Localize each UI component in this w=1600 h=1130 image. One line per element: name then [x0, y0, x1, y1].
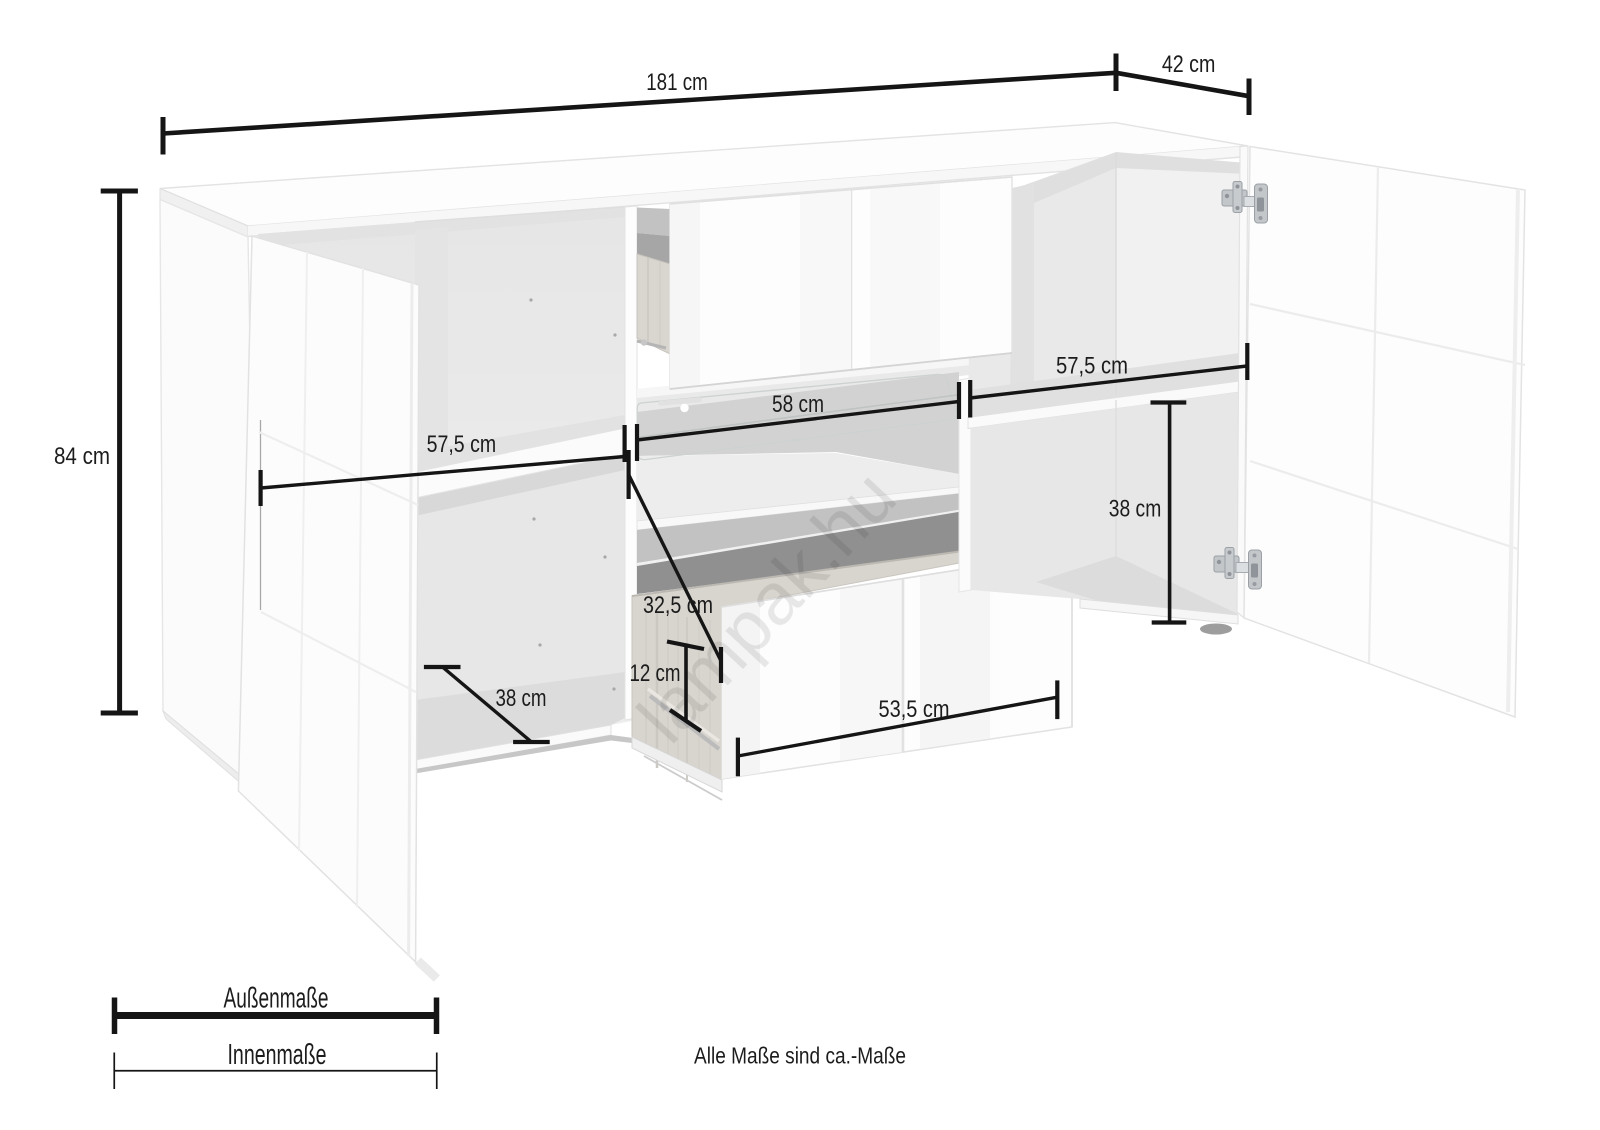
svg-text:38 cm: 38 cm — [496, 685, 547, 712]
svg-text:32,5 cm: 32,5 cm — [643, 592, 713, 619]
svg-text:Alle Maße sind ca.-Maße: Alle Maße sind ca.-Maße — [694, 1043, 906, 1069]
svg-text:Außenmaße: Außenmaße — [224, 983, 329, 1015]
svg-text:57,5 cm: 57,5 cm — [427, 431, 497, 458]
svg-text:84 cm: 84 cm — [54, 443, 110, 470]
svg-text:38 cm: 38 cm — [1109, 496, 1162, 523]
svg-text:42 cm: 42 cm — [1162, 51, 1216, 78]
svg-text:53,5 cm: 53,5 cm — [879, 696, 950, 723]
svg-text:58 cm: 58 cm — [772, 391, 824, 418]
svg-text:181 cm: 181 cm — [646, 69, 708, 96]
svg-text:Innenmaße: Innenmaße — [228, 1039, 327, 1071]
svg-text:57,5 cm: 57,5 cm — [1056, 353, 1128, 380]
svg-text:12 cm: 12 cm — [630, 660, 681, 687]
